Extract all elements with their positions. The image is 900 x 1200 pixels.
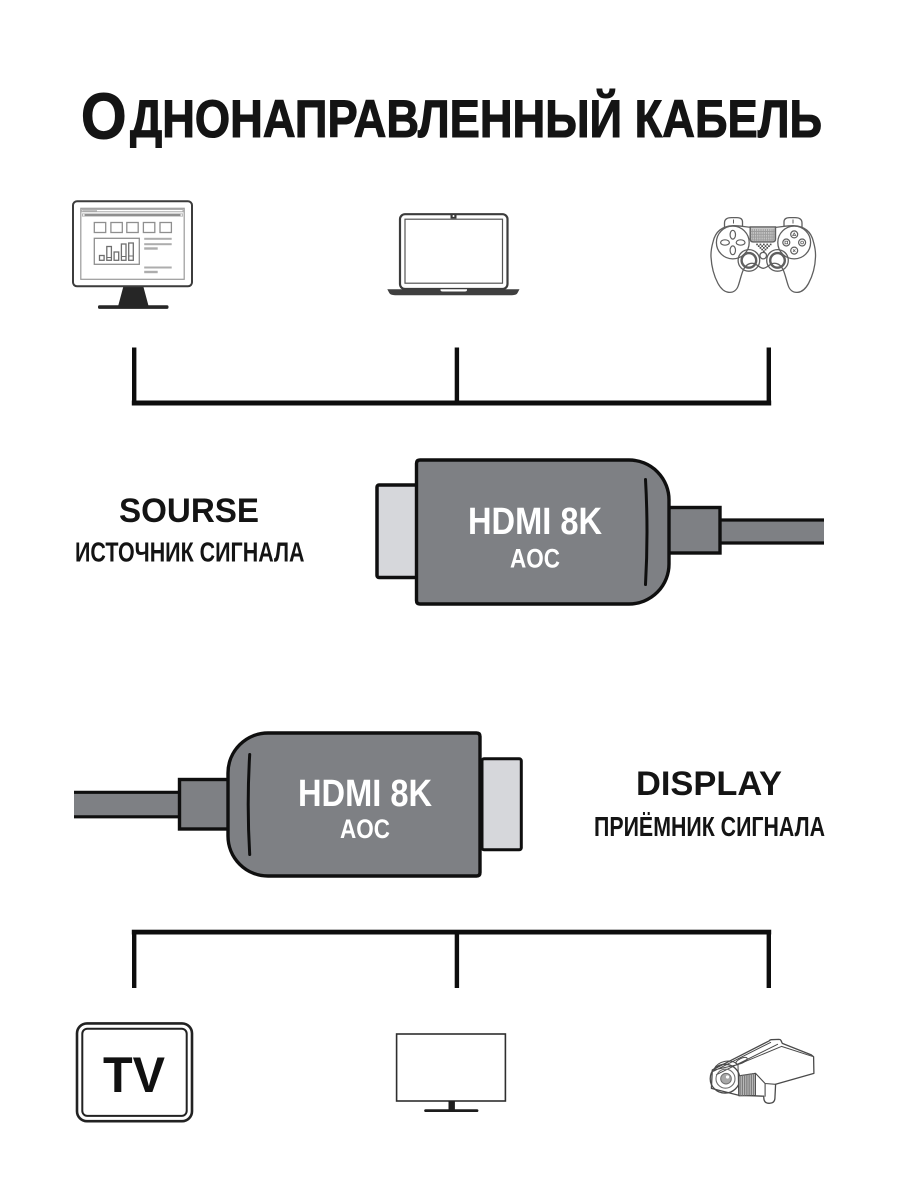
svg-text:HDMI 8K: HDMI 8K [468, 501, 602, 543]
svg-text:SOURSE: SOURSE [119, 492, 259, 530]
svg-text:ДНОНАПРАВЛЕННЫЙ КАБЕЛЬ: ДНОНАПРАВЛЕННЫЙ КАБЕЛЬ [130, 90, 822, 149]
svg-text:О: О [81, 80, 127, 153]
svg-text:ИСТОЧНИК СИГНАЛА: ИСТОЧНИК СИГНАЛА [75, 537, 305, 568]
svg-text:ПРИЁМНИК СИГНАЛА: ПРИЁМНИК СИГНАЛА [594, 811, 825, 842]
svg-text:AOC: AOC [510, 544, 560, 574]
svg-text:TV: TV [103, 1047, 166, 1103]
svg-text:AOC: AOC [340, 814, 390, 844]
svg-text:DISPLAY: DISPLAY [636, 765, 782, 803]
svg-text:HDMI 8K: HDMI 8K [298, 773, 432, 815]
